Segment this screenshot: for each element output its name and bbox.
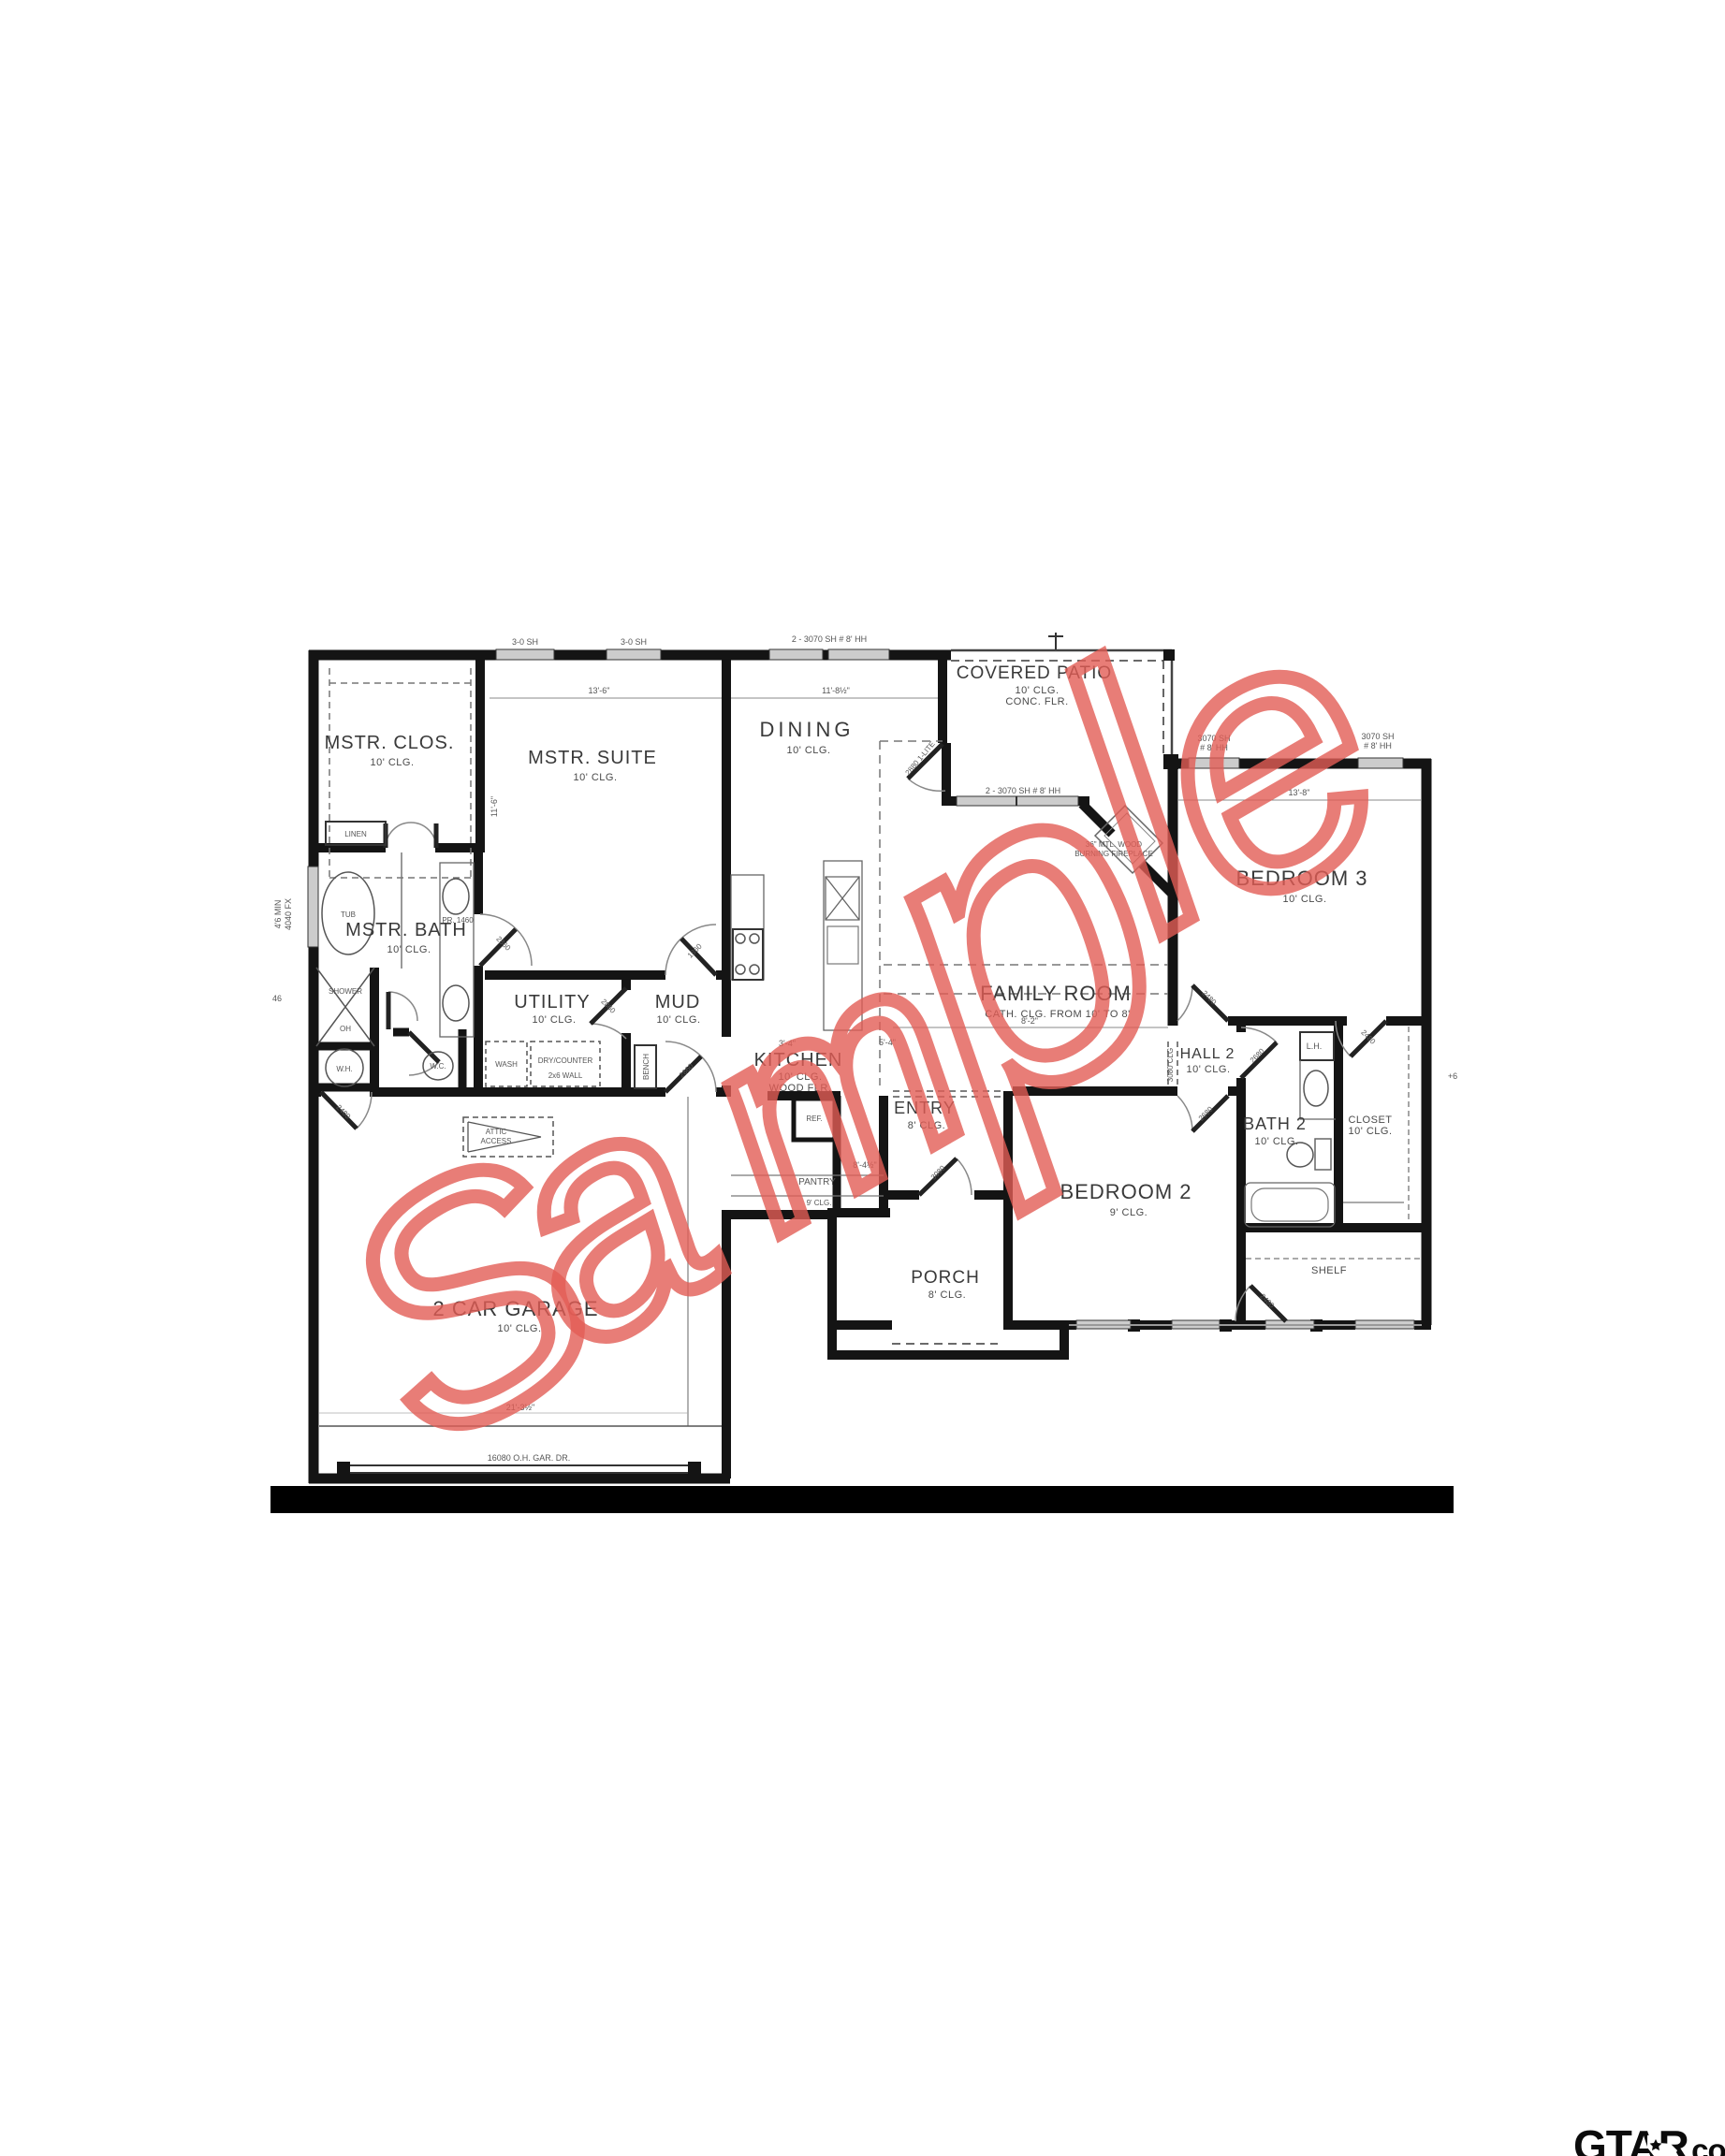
svg-text:3-0 SH: 3-0 SH xyxy=(621,637,647,647)
svg-text:BATH 2: BATH 2 xyxy=(1243,1114,1307,1133)
svg-text:10' CLG.: 10' CLG. xyxy=(786,745,830,756)
svg-text:BEDROOM 2: BEDROOM 2 xyxy=(1060,1180,1191,1203)
svg-text:+6: +6 xyxy=(1448,1071,1457,1081)
svg-text:L.H.: L.H. xyxy=(1307,1042,1323,1051)
svg-text:W.C.: W.C. xyxy=(430,1062,446,1071)
svg-text:MSTR. CLOS.: MSTR. CLOS. xyxy=(325,733,455,753)
svg-text:10' CLG.: 10' CLG. xyxy=(370,757,414,768)
svg-text:10' CLG.: 10' CLG. xyxy=(573,772,617,783)
svg-text:10' CLG.: 10' CLG. xyxy=(1348,1126,1392,1137)
svg-text:10' CLG.: 10' CLG. xyxy=(532,1014,576,1026)
svg-text:OH: OH xyxy=(340,1025,351,1033)
svg-text:3-0 SH: 3-0 SH xyxy=(512,637,538,647)
svg-text:11'-6": 11'-6" xyxy=(490,796,499,817)
svg-text:2 - 3070 SH # 8' HH: 2 - 3070 SH # 8' HH xyxy=(792,634,867,644)
svg-text:SHELF: SHELF xyxy=(1311,1265,1347,1276)
svg-text:11'-8½": 11'-8½" xyxy=(822,686,850,695)
svg-text:TUB: TUB xyxy=(341,910,356,919)
svg-text:10' CLG.: 10' CLG. xyxy=(1254,1136,1298,1147)
svg-text:PR. 1460: PR. 1460 xyxy=(442,916,474,925)
svg-text:SHOWER: SHOWER xyxy=(329,987,362,996)
svg-text:10' CLG.: 10' CLG. xyxy=(387,944,431,955)
svg-text:4040 FX: 4040 FX xyxy=(284,898,293,930)
svg-text:.com: .com xyxy=(1684,2133,1725,2156)
svg-text:DINING: DINING xyxy=(760,718,855,741)
svg-text:8' CLG.: 8' CLG. xyxy=(928,1289,966,1301)
svg-text:9' CLG.: 9' CLG. xyxy=(1110,1207,1148,1218)
svg-text:46: 46 xyxy=(272,994,282,1003)
svg-text:UTILITY: UTILITY xyxy=(514,992,590,1012)
svg-text:W.H.: W.H. xyxy=(336,1065,352,1073)
svg-text:BENCH: BENCH xyxy=(642,1054,651,1080)
svg-text:LINEN: LINEN xyxy=(344,830,367,838)
svg-text:MSTR. SUITE: MSTR. SUITE xyxy=(528,748,657,768)
svg-text:4'6 MIN: 4'6 MIN xyxy=(273,900,283,929)
svg-text:CLOSET: CLOSET xyxy=(1348,1114,1392,1126)
svg-text:13'-6": 13'-6" xyxy=(589,686,610,695)
svg-text:PORCH: PORCH xyxy=(911,1268,980,1288)
